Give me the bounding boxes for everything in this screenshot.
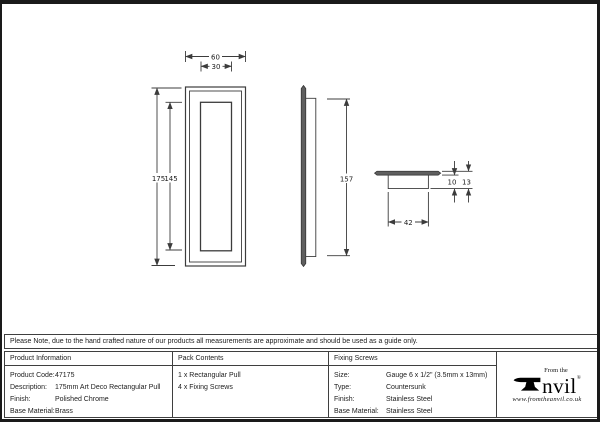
brand-logo: From thenvil® www.fromtheanvil.co.uk: [512, 367, 581, 403]
row-value: Countersunk: [386, 382, 496, 394]
row-label: Finish:: [10, 394, 55, 406]
product-spec-sheet: 60 30 175 145: [0, 0, 600, 422]
dim-label: 42: [404, 219, 413, 227]
row-value: Stainless Steel: [386, 394, 496, 406]
dim-label: 145: [164, 175, 177, 183]
front-view: [186, 87, 246, 266]
note-bar: Please Note, due to the hand crafted nat…: [4, 334, 598, 349]
row-value: 47175: [55, 370, 172, 382]
row-value: 175mm Art Deco Rectangular Pull: [55, 382, 172, 394]
dim-label: 157: [340, 175, 353, 183]
anvil-icon: [513, 374, 541, 395]
dim-plan-depths: 10 13: [431, 161, 473, 203]
row-value: Polished Chrome: [55, 394, 172, 406]
brand-prefix: From the: [544, 367, 568, 374]
header-fixing-screws: Fixing Screws: [329, 352, 497, 366]
row-label: Finish:: [334, 394, 386, 406]
registered-mark: ®: [577, 375, 581, 381]
fixing-screws-cell: Size: Gauge 6 x 1/2" (3.5mm x 13mm) Type…: [329, 366, 497, 418]
row-value: Gauge 6 x 1/2" (3.5mm x 13mm): [386, 370, 496, 382]
dim-label: 30: [212, 63, 221, 71]
brand-cell: From thenvil® www.fromtheanvil.co.uk: [497, 352, 597, 418]
header-pack-contents: Pack Contents: [173, 352, 329, 366]
dim-front-heights: 175 145: [150, 88, 182, 266]
dim-label: 13: [462, 179, 471, 187]
brand-name: nvil: [542, 374, 577, 398]
row-value: Brass: [55, 406, 172, 418]
dim-front-inner-width: 30: [201, 62, 232, 72]
dim-label: 60: [211, 53, 220, 61]
product-information-cell: Product Code: 47175 Description: 175mm A…: [5, 366, 173, 418]
pack-item: 4 x Fixing Screws: [178, 382, 328, 394]
dim-front-outer-width: 60: [186, 51, 246, 62]
dim-plan-width: 42: [388, 192, 428, 227]
side-view: [301, 86, 316, 267]
row-label: Base Material:: [10, 406, 55, 418]
row-label: Base Material:: [334, 406, 386, 418]
row-label: Product Code:: [10, 370, 55, 382]
dim-side-height: 157: [327, 99, 355, 256]
header-product-information: Product Information: [5, 352, 173, 366]
technical-drawing: 60 30 175 145: [2, 4, 600, 334]
dim-label: 10: [448, 179, 457, 187]
pack-item: 1 x Rectangular Pull: [178, 370, 328, 382]
plan-view: [375, 171, 441, 188]
spec-table: Product Information Pack Contents Fixing…: [4, 351, 598, 418]
dim-label: 175: [152, 175, 165, 183]
row-label: Size:: [334, 370, 386, 382]
pack-contents-cell: 1 x Rectangular Pull 4 x Fixing Screws: [173, 366, 329, 418]
row-label: Type:: [334, 382, 386, 394]
note-text: Please Note, due to the hand crafted nat…: [10, 338, 418, 345]
row-value: Stainless Steel: [386, 406, 496, 418]
row-label: Description:: [10, 382, 55, 394]
